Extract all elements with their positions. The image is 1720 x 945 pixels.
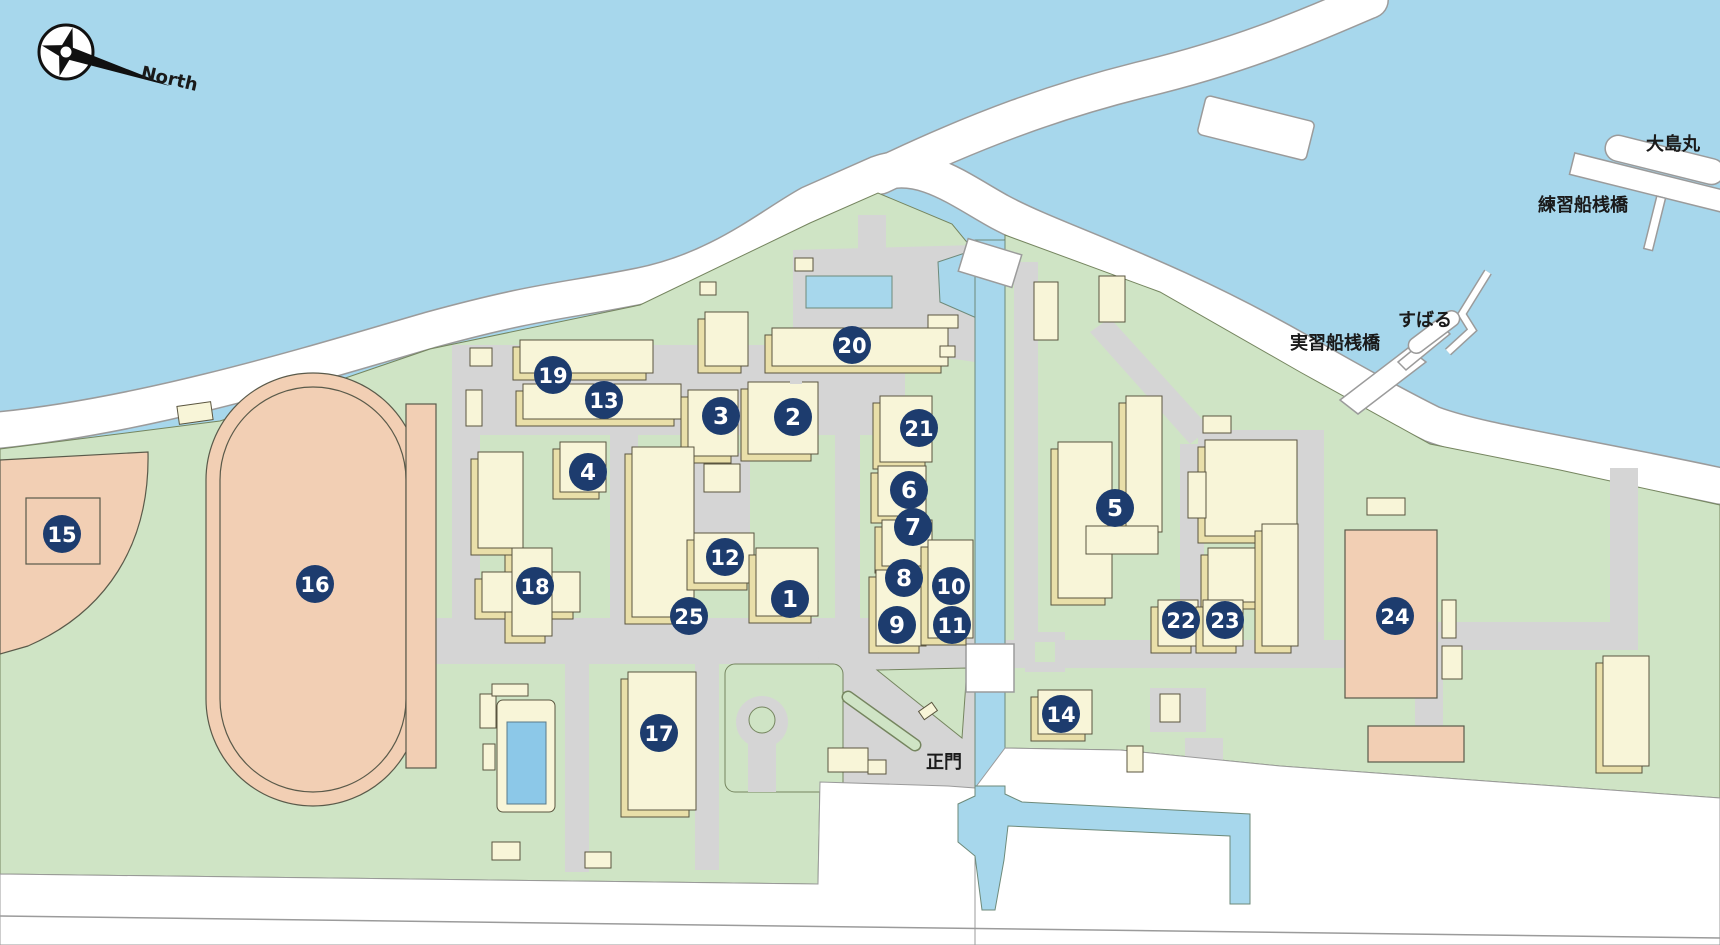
map-marker-number-24: 24 xyxy=(1380,605,1409,629)
map-marker-number-14: 14 xyxy=(1046,703,1075,727)
building-bottom-right xyxy=(1596,656,1649,773)
map-marker-number-10: 10 xyxy=(936,575,965,599)
canal-bridge xyxy=(966,644,1014,692)
map-marker-number-18: 18 xyxy=(520,575,549,599)
jisshusen-sanbashi-label: 実習船桟橋 xyxy=(1290,332,1381,354)
map-marker-number-21: 21 xyxy=(904,417,933,441)
map-marker-number-15: 15 xyxy=(47,523,76,547)
map-marker-number-23: 23 xyxy=(1210,609,1239,633)
building-5a xyxy=(1051,442,1112,605)
map-marker-number-12: 12 xyxy=(710,546,739,570)
map-marker-number-6: 6 xyxy=(901,478,917,504)
map-marker-number-20: 20 xyxy=(837,334,866,358)
track-stand xyxy=(406,404,436,768)
campus-map-page: North 大島丸 練習船桟橋 すばる 実習船桟橋 正門 12345678910… xyxy=(0,0,1720,945)
map-marker-number-11: 11 xyxy=(937,614,966,638)
map-marker-number-19: 19 xyxy=(538,364,567,388)
map-marker-number-17: 17 xyxy=(644,722,673,746)
building-19 xyxy=(513,340,653,380)
seimon-label: 正門 xyxy=(926,752,962,773)
map-marker-number-8: 8 xyxy=(896,566,912,592)
building-block xyxy=(471,452,523,555)
map-marker-number-2: 2 xyxy=(785,405,801,431)
building-tall-east xyxy=(1255,524,1298,653)
map-marker-number-22: 22 xyxy=(1166,609,1195,633)
map-marker-number-25: 25 xyxy=(674,605,703,629)
building-5-conn xyxy=(1086,526,1158,554)
map-marker-number-7: 7 xyxy=(905,515,921,541)
map-marker-number-5: 5 xyxy=(1107,496,1123,522)
renshusen-sanbashi-label: 練習船桟橋 xyxy=(1538,194,1629,216)
map-marker-number-1: 1 xyxy=(782,587,798,613)
map-marker-number-13: 13 xyxy=(589,389,618,413)
swimming-pool xyxy=(507,722,546,804)
subaru-label: すばる xyxy=(1398,310,1452,331)
map-marker-number-4: 4 xyxy=(580,460,596,486)
loop-road xyxy=(725,664,843,792)
map-marker-number-16: 16 xyxy=(300,573,329,597)
campus-map-svg: North 大島丸 練習船桟橋 すばる 実習船桟橋 正門 12345678910… xyxy=(0,0,1720,945)
court-lower xyxy=(1368,726,1464,762)
map-marker-number-9: 9 xyxy=(889,613,905,639)
oshimamaru-label: 大島丸 xyxy=(1646,133,1701,155)
map-marker-number-3: 3 xyxy=(713,404,729,430)
building-block xyxy=(698,312,748,373)
